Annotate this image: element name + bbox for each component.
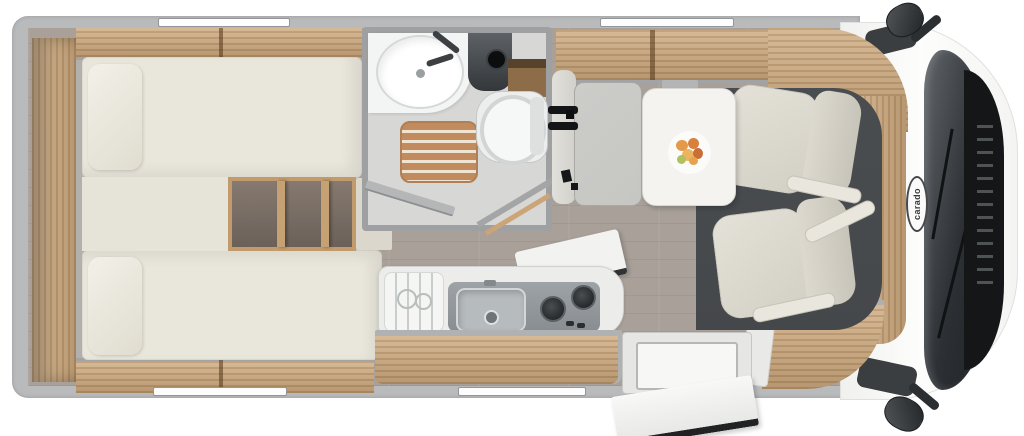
- window-kitchen-bottom: [458, 387, 586, 396]
- bench-seat: [574, 82, 642, 206]
- rear-shelf: [32, 38, 76, 382]
- brand-badge-label: carado: [912, 188, 922, 220]
- pillow-top: [88, 64, 142, 170]
- window-rear-bottom: [153, 387, 287, 396]
- cabinet-divider: [650, 30, 655, 80]
- toilet-lid-hinge: [530, 97, 544, 155]
- seat-belt-buckle-1: [566, 110, 574, 119]
- niche-divider-1: [277, 181, 285, 247]
- brand-badge: carado: [906, 176, 928, 232]
- bed-middle-platform: [82, 177, 228, 251]
- hob-burner-large: [540, 296, 566, 322]
- grille-slits: [977, 118, 993, 294]
- plate: [668, 131, 711, 174]
- glass-panel-drain-hole: [486, 49, 507, 70]
- window-dinette-top: [600, 18, 734, 27]
- seat-belt-buckle-3: [571, 183, 578, 190]
- kitchen-faucet: [484, 280, 496, 286]
- food-item: [677, 155, 686, 164]
- cabinet-divider: [219, 28, 223, 57]
- niche-divider-2: [321, 181, 329, 247]
- hob-burner-small: [571, 285, 596, 310]
- hob-knob-1: [566, 321, 574, 326]
- glassware: [415, 293, 432, 310]
- kitchen-unit-front: [375, 330, 622, 384]
- dish-rack: [384, 272, 444, 332]
- cabinet-divider: [219, 358, 223, 390]
- basin-drain: [416, 69, 425, 78]
- motorhome-floorplan: carado: [0, 0, 1024, 436]
- seat-belt-strap-2: [548, 122, 578, 130]
- glassware: [397, 289, 417, 309]
- hob-knob-2: [577, 323, 585, 328]
- food-item: [689, 157, 698, 165]
- overhead-cabinet-dinette: [556, 30, 768, 83]
- shower-mat: [400, 121, 478, 183]
- sink-drain: [484, 310, 499, 325]
- pillow-bottom: [88, 257, 142, 355]
- window-rear-top: [158, 18, 290, 27]
- storage-niche: [228, 177, 356, 251]
